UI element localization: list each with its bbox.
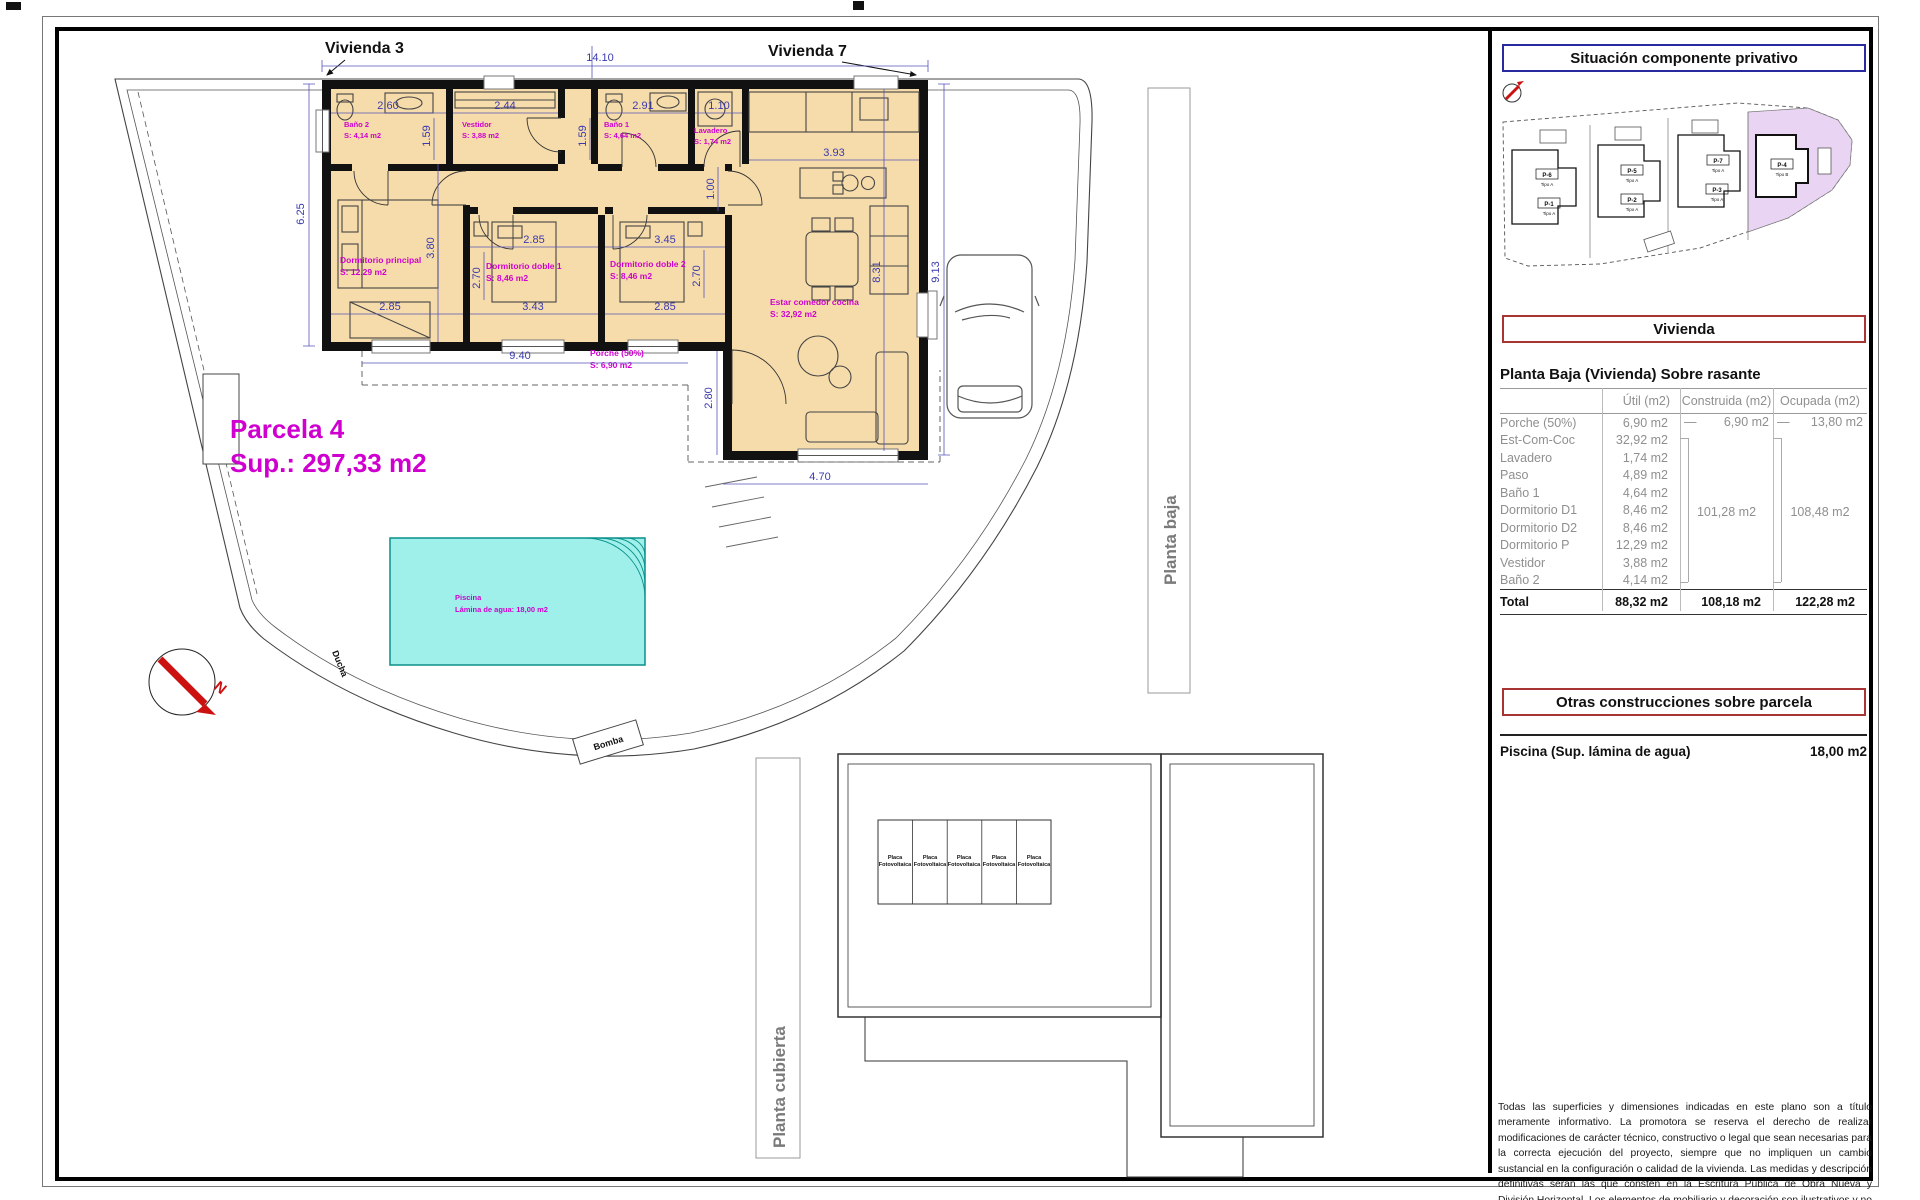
car-outline (940, 255, 1039, 418)
pool-name: Piscina (455, 593, 482, 602)
parcela-area: Sup.: 297,33 m2 (230, 448, 427, 478)
parcel-id: P-1 (1544, 202, 1554, 208)
solar-panel-label: Placa (957, 855, 972, 861)
porche-ocupada-cell: — 13,80 m2 (1777, 415, 1863, 429)
dim-doble1-d: 2.70 (471, 267, 483, 288)
dim-vestidor-w: 2.44 (494, 100, 515, 112)
row-util: 4,14 m2 (1602, 573, 1680, 587)
parcel-id: P-5 (1627, 169, 1637, 175)
vivienda-title-box: Vivienda (1502, 315, 1866, 343)
room-doble1-area: S: 8,46 m2 (486, 273, 528, 283)
dim-paso-w: 1.00 (705, 178, 717, 199)
dim-lavadero-w: 1.10 (708, 100, 729, 112)
solar-panel-label: Placa (923, 855, 938, 861)
value: 13,80 m2 (1811, 415, 1863, 429)
row-util: 8,46 m2 (1602, 503, 1680, 517)
solar-panels: Placa Fotovoltaica Placa Fotovoltaica Pl… (878, 820, 1051, 904)
room-dormp-area: S: 12,29 m2 (340, 267, 387, 277)
row-name: Lavadero (1500, 451, 1602, 465)
parcel-tipo: Tipo B (1776, 172, 1789, 177)
situacion-site-plan: P-6 Tipo A P-1 Tipo A P-5 Tipo A P-2 Tip… (1503, 103, 1852, 266)
row-util: 8,46 m2 (1602, 521, 1680, 535)
table-row: Baño 14,64 m2 (1500, 484, 1867, 502)
row-util: 12,29 m2 (1602, 538, 1680, 552)
bracket-stub (1773, 582, 1781, 583)
planta-cubierta-strip: Planta cubierta (756, 758, 800, 1158)
bomba-box: Bomba (573, 720, 644, 764)
solar-panel-label: Placa (1027, 855, 1042, 861)
room-estar-name: Estar comedor cocina (770, 297, 859, 307)
row-util: 4,89 m2 (1602, 468, 1680, 482)
situacion-title: Situación componente privativo (1570, 50, 1798, 67)
row-name: Baño 2 (1500, 573, 1602, 587)
row-name: Dormitorio P (1500, 538, 1602, 552)
parcel-id: P-3 (1712, 188, 1722, 194)
planta-cubierta-label: Planta cubierta (770, 1026, 789, 1148)
dim-cocina-w: 3.93 (823, 147, 844, 159)
dim-doble1-wb: 3.43 (522, 301, 543, 313)
table-row: Baño 24,14 m2 (1500, 572, 1867, 590)
parcel-tipo: Tipo A (1626, 178, 1639, 183)
parcel-tipo: Tipo A (1711, 197, 1724, 202)
bracket-stub (1680, 438, 1688, 439)
row-name: Baño 1 (1500, 486, 1602, 500)
table-row: Vestidor3,88 m2 (1500, 554, 1867, 572)
room-lavadero-name: Lavadero (694, 126, 728, 135)
parcel-tipo: Tipo A (1626, 207, 1639, 212)
solar-panel-label: Placa (888, 855, 903, 861)
table-row: Lavadero1,74 m2 (1500, 449, 1867, 467)
room-vestidor-name: Vestidor (462, 120, 492, 129)
row-name: Paso (1500, 468, 1602, 482)
dim-total-width: 14.10 (586, 52, 614, 64)
column-separator (1680, 388, 1681, 611)
solar-panel-label: Fotovoltaica (879, 862, 912, 868)
dim-bano2-w: 2.60 (377, 100, 398, 112)
dim-porche-w: 9.40 (509, 350, 530, 362)
ocupada-group-value: 108,48 m2 (1773, 505, 1867, 519)
total-ocupada: 122,28 m2 (1773, 595, 1867, 609)
ducha-label: Ducha (330, 649, 350, 679)
bracket-stub (1773, 438, 1781, 439)
table-row: Dormitorio P12,29 m2 (1500, 537, 1867, 555)
dim-left-height: 6.25 (295, 203, 307, 224)
otras-title: Otras construcciones sobre parcela (1556, 694, 1812, 711)
solar-panel-label: Fotovoltaica (948, 862, 981, 868)
column-separator (1773, 388, 1774, 611)
dash: — (1777, 415, 1790, 429)
solar-panel-label: Fotovoltaica (1018, 862, 1051, 868)
north-compass: N (149, 649, 230, 715)
row-util: 32,92 m2 (1602, 433, 1680, 447)
dim-dormp-d: 3.80 (425, 237, 437, 258)
room-bano1-name: Baño 1 (604, 120, 629, 129)
room-lavadero-area: S: 1,74 m2 (694, 137, 731, 146)
dim-bano1-w: 2.91 (632, 100, 653, 112)
dim-bano2-d: 1.59 (421, 125, 433, 146)
room-doble2-area: S: 8,46 m2 (610, 271, 652, 281)
bracket-stub (1680, 582, 1688, 583)
otras-title-box: Otras construcciones sobre parcela (1502, 688, 1866, 716)
piscina-label: Piscina (Sup. lámina de agua) (1500, 744, 1691, 759)
piscina-summary-row: Piscina (Sup. lámina de agua) 18,00 m2 (1500, 734, 1867, 759)
parcel-tipo: Tipo A (1541, 182, 1554, 187)
parcel-tipo: Tipo A (1543, 211, 1556, 216)
dim-doble2-w: 3.45 (654, 234, 675, 246)
solar-panel-label: Fotovoltaica (914, 862, 947, 868)
room-doble1-name: Dormitorio doble 1 (486, 261, 562, 271)
dim-estar-sw-w: 4.70 (809, 471, 830, 483)
table-row: Dormitorio D28,46 m2 (1500, 519, 1867, 537)
dim-doble1-w: 2.85 (523, 234, 544, 246)
total-label: Total (1500, 595, 1602, 609)
registration-mark (6, 2, 21, 10)
room-vestidor-area: S: 3,88 m2 (462, 131, 499, 140)
room-dormp-name: Dormitorio principal (340, 255, 421, 265)
row-util: 6,90 m2 (1602, 416, 1680, 430)
room-bano2-name: Baño 2 (344, 120, 369, 129)
vivienda7-title: Vivienda 7 (768, 43, 847, 60)
parcel-tipo: Tipo A (1712, 168, 1725, 173)
porche-construida-cell: — 6,90 m2 (1684, 415, 1769, 429)
room-bano2-area: S: 4,14 m2 (344, 131, 381, 140)
registration-mark (853, 1, 864, 10)
dash: — (1684, 415, 1697, 429)
disclaimer-text: Todas las superficies y dimensiones indi… (1498, 1100, 1872, 1200)
plan-sheet: Baño 2 S: 4,14 m2 Vestidor S: 3,88 m2 Ba… (0, 0, 1920, 1200)
table-row: Est-Com-Coc32,92 m2 (1500, 432, 1867, 450)
panel-compass-icon (1503, 81, 1524, 102)
row-name: Est-Com-Coc (1500, 433, 1602, 447)
parcel-id: P-6 (1542, 173, 1552, 179)
dim-estar-sw-h: 2.80 (703, 387, 715, 408)
header-construida: Construida (m2) (1680, 394, 1773, 408)
table-row: Paso4,89 m2 (1500, 467, 1867, 485)
planta-baja-label: Planta baja (1161, 495, 1180, 585)
row-util: 1,74 m2 (1602, 451, 1680, 465)
row-util: 3,88 m2 (1602, 556, 1680, 570)
situacion-title-box: Situación componente privativo (1502, 44, 1866, 72)
dim-doble2-wb: 2.85 (654, 301, 675, 313)
dim-bano1-d: 1.59 (577, 125, 589, 146)
room-estar-area: S: 32,92 m2 (770, 309, 817, 319)
room-porche-area: S: 6,90 m2 (590, 360, 632, 370)
surfaces-table: Útil (m2) Construida (m2) Ocupada (m2) P… (1500, 388, 1867, 615)
row-name: Dormitorio D2 (1500, 521, 1602, 535)
parcel-id: P-7 (1713, 159, 1723, 165)
planta-baja-strip: Planta baja (1148, 88, 1190, 693)
vivienda-title: Vivienda (1653, 321, 1714, 338)
dim-doble2-d: 2.70 (691, 265, 703, 286)
ocupada-bracket (1781, 438, 1782, 582)
room-doble2-name: Dormitorio doble 2 (610, 259, 686, 269)
header-ocupada: Ocupada (m2) (1773, 394, 1867, 408)
dim-estar-h: 8.31 (871, 261, 883, 282)
table-title: Planta Baja (Vivienda) Sobre rasante (1500, 366, 1761, 383)
vivienda3-title: Vivienda 3 (325, 40, 404, 57)
room-bano1-area: S: 4,64 m2 (604, 131, 641, 140)
row-util: 4,64 m2 (1602, 486, 1680, 500)
dim-right-height: 9.13 (930, 261, 942, 282)
parcel-id: P-4 (1777, 163, 1787, 169)
header-util: Útil (m2) (1602, 394, 1680, 408)
roof-plan: Placa Fotovoltaica Placa Fotovoltaica Pl… (838, 754, 1323, 1177)
parcela-name: Parcela 4 (230, 414, 345, 444)
parcel-id: P-2 (1627, 198, 1637, 204)
total-util: 88,32 m2 (1602, 595, 1680, 609)
column-separator (1602, 388, 1603, 611)
row-name: Vestidor (1500, 556, 1602, 570)
row-name: Dormitorio D1 (1500, 503, 1602, 517)
dim-dormp-w: 2.85 (379, 301, 400, 313)
room-porche-name: Porche (50%) (590, 348, 644, 358)
construida-bracket (1688, 438, 1689, 582)
table-header-row: Útil (m2) Construida (m2) Ocupada (m2) (1500, 388, 1867, 414)
pool-area: Lámina de agua: 18,00 m2 (455, 605, 548, 614)
table-total-row: Total 88,32 m2 108,18 m2 122,28 m2 (1500, 589, 1867, 615)
value: 6,90 m2 (1724, 415, 1769, 429)
piscina-value: 18,00 m2 (1810, 744, 1867, 759)
construida-group-value: 101,28 m2 (1680, 505, 1773, 519)
solar-panel-label: Fotovoltaica (983, 862, 1016, 868)
total-construida: 108,18 m2 (1680, 595, 1773, 609)
pool: Piscina Lámina de agua: 18,00 m2 (390, 538, 645, 665)
row-name: Porche (50%) (1500, 416, 1602, 430)
solar-panel-label: Placa (992, 855, 1007, 861)
